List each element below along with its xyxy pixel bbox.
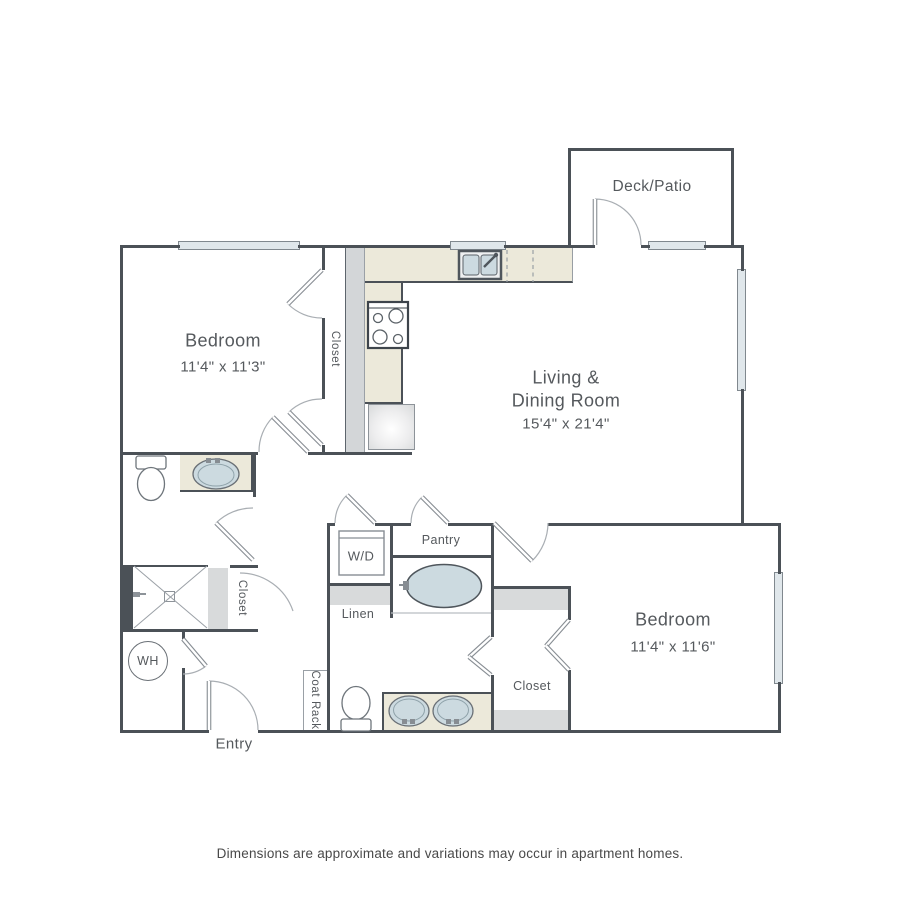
wall: [390, 523, 393, 618]
wall: [120, 245, 180, 248]
wall: [253, 452, 256, 497]
wall: [741, 245, 744, 271]
deck-patio-label: Deck/Patio: [613, 178, 692, 196]
bathroom2-vanity: [382, 692, 491, 730]
wall: [448, 523, 494, 526]
toilet-icon: [136, 456, 166, 501]
linen-label: Linen: [342, 607, 375, 621]
bathroom1-door: [216, 508, 253, 560]
bedroom1-closet-door-lower: [289, 399, 322, 445]
bedroom1-door: [259, 417, 308, 452]
wall: [568, 245, 595, 248]
wall: [491, 730, 781, 733]
coat-rack-label: Coat Rack: [309, 670, 321, 729]
wall: [308, 452, 412, 455]
wall: [120, 730, 209, 733]
linen-shelf: [330, 586, 390, 605]
bedroom2-closet-shelf-bottom: [494, 710, 568, 730]
wall: [327, 523, 335, 526]
entry-label: Entry: [215, 735, 252, 752]
shower-side-wall: [120, 565, 133, 632]
wall: [322, 245, 325, 270]
bedroom1-label: Bedroom: [185, 331, 261, 352]
bedroom1-dimensions: 11'4" x 11'3": [180, 358, 265, 375]
bathroom1-vanity: [180, 455, 253, 492]
living-dining-dimensions: 15'4" x 21'4": [522, 415, 609, 432]
wall: [778, 682, 781, 733]
wall: [182, 668, 185, 733]
entry-door: [209, 681, 258, 730]
footer-disclaimer: Dimensions are approximate and variation…: [0, 846, 900, 861]
bathroom1-closet-label: Closet: [236, 580, 248, 616]
bedroom2-label: Bedroom: [635, 610, 711, 631]
toilet-icon: [341, 687, 371, 732]
bathtub-icon: [391, 565, 491, 614]
kitchen-counter-top: [365, 247, 573, 283]
living-dining-label-1: Living &: [532, 368, 599, 389]
washer-dryer-label: W/D: [348, 550, 374, 565]
wall: [327, 523, 330, 733]
bedroom2-closet-shelf-top: [494, 589, 568, 610]
living-room-side-window: [737, 269, 746, 391]
wall: [120, 245, 123, 733]
bedroom2-closet-bifold-door: [546, 620, 569, 670]
wall: [568, 670, 571, 733]
water-heater-label: WH: [137, 654, 159, 668]
deck-wall: [568, 148, 571, 248]
wall: [641, 245, 650, 248]
bathroom1-closet-shelf: [208, 568, 228, 629]
wall: [778, 523, 781, 574]
water-heater-door: [183, 639, 206, 674]
wall: [741, 389, 744, 523]
wall: [327, 730, 494, 733]
shower-handle: [164, 591, 175, 602]
washer-dryer-door: [335, 495, 375, 523]
living-room-top-window: [648, 241, 706, 250]
plan-detail-layer: [0, 0, 900, 900]
wall: [120, 629, 258, 632]
wall: [375, 523, 411, 526]
bedroom1-closet-wall-strip: [345, 247, 365, 453]
bedroom2-dimensions: 11'4" x 11'6": [630, 638, 715, 655]
wall: [390, 555, 494, 558]
wall: [120, 452, 258, 455]
wall: [258, 730, 329, 733]
wall: [491, 586, 571, 589]
wall: [322, 318, 325, 399]
wall: [182, 632, 185, 640]
wall: [327, 583, 393, 586]
living-dining-label-2: Dining Room: [512, 391, 620, 412]
wall: [704, 245, 744, 248]
bedroom1-closet-door-upper: [288, 270, 322, 318]
bedroom2-window: [774, 572, 783, 684]
wall: [298, 245, 450, 248]
bedroom2-closet-label: Closet: [513, 679, 551, 693]
wall: [491, 675, 494, 733]
pantry-label: Pantry: [422, 533, 461, 547]
wall: [548, 523, 781, 526]
kitchen-counter-side: [365, 283, 403, 404]
bedroom1-closet-label: Closet: [329, 331, 341, 367]
deck-wall: [731, 148, 734, 248]
floor-plan: Deck/Patio Bedroom 11'4" x 11'3" Living …: [0, 0, 900, 900]
bedroom1-window: [178, 241, 300, 250]
bedroom2-door: [494, 523, 548, 561]
pantry-door: [411, 497, 448, 523]
wall: [230, 565, 258, 568]
kitchen-window: [450, 241, 506, 250]
deck-door: [595, 199, 641, 245]
refrigerator: [368, 404, 415, 450]
bathroom2-bifold-door: [469, 637, 491, 675]
wall: [504, 245, 572, 248]
wall: [491, 523, 494, 637]
wall: [568, 586, 571, 620]
deck-wall: [568, 148, 734, 151]
